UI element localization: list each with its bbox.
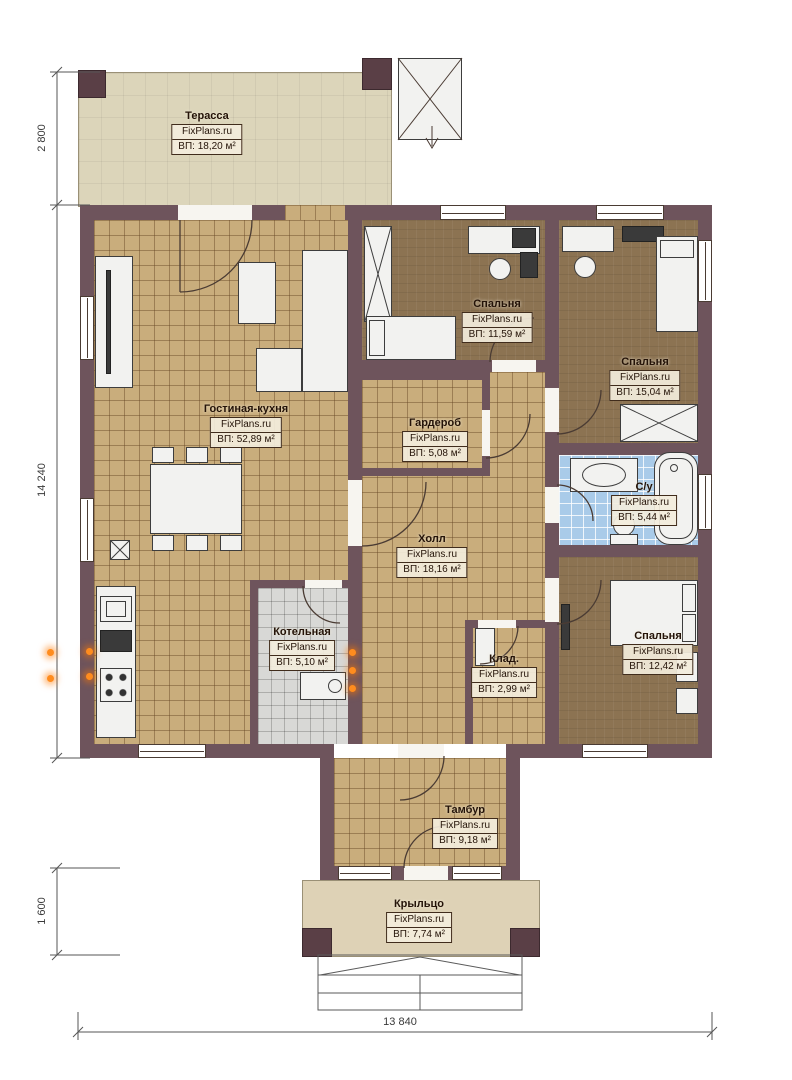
brand-watermark: FixPlans.ru	[463, 313, 532, 328]
dining-chair	[220, 447, 242, 463]
window-bottom-bedroom3	[582, 744, 648, 758]
wardrobe-door-opening	[482, 410, 490, 456]
boiler-door-opening	[305, 580, 342, 588]
dimension-left-bottom: 1 600	[36, 897, 48, 925]
wall-vestibule-left	[320, 744, 334, 880]
entry-door-opening	[404, 866, 448, 880]
desk-chair	[489, 258, 511, 280]
brand-watermark: FixPlans.ru	[623, 645, 692, 660]
room-name: Клад.	[471, 653, 537, 666]
room-area: ВП: 7,74 м²	[387, 928, 451, 942]
porch-steps	[318, 955, 522, 1010]
tv-screen	[561, 604, 570, 650]
room-label-bedroom-bottom: Спальня FixPlans.ru ВП: 12,42 м²	[622, 630, 693, 675]
room-name: Котельная	[269, 626, 335, 639]
radiator-marker	[349, 685, 356, 692]
window-left-living1	[80, 296, 94, 360]
radiator-marker	[86, 648, 93, 655]
wall-bathroom-bottom	[559, 545, 698, 557]
pillow	[682, 584, 696, 612]
wall-east-b	[545, 432, 559, 487]
room-name: Тамбур	[432, 804, 498, 817]
room-area: ВП: 18,20 м²	[172, 140, 241, 154]
sofa	[302, 250, 348, 392]
wardrobe-cabinet	[364, 226, 392, 322]
toilet-tank	[610, 534, 638, 545]
dining-table	[150, 464, 242, 534]
room-label-bathroom: С/у FixPlans.ru ВП: 5,44 м²	[611, 481, 677, 526]
coffee-table	[238, 262, 276, 324]
brand-watermark: FixPlans.ru	[172, 125, 241, 140]
radiator-marker	[86, 673, 93, 680]
brand-watermark: FixPlans.ru	[403, 432, 467, 447]
brand-watermark: FixPlans.ru	[472, 668, 536, 683]
room-name: Гардероб	[402, 417, 468, 430]
floor-plan-canvas: Терасса FixPlans.ru ВП: 18,20 м² Спальня…	[0, 0, 792, 1080]
brand-watermark: FixPlans.ru	[612, 496, 676, 511]
brand-watermark: FixPlans.ru	[270, 641, 334, 656]
monitor	[512, 228, 536, 248]
desk	[562, 226, 614, 252]
kitchen-sink-basin	[106, 601, 126, 617]
room-label-boiler: Котельная FixPlans.ru ВП: 5,10 м²	[269, 626, 335, 671]
radiator-marker	[47, 675, 54, 682]
room-label-porch: Крыльцо FixPlans.ru ВП: 7,74 м²	[386, 898, 452, 943]
dining-chair	[220, 535, 242, 551]
radiator-marker	[349, 667, 356, 674]
room-name: Спальня	[609, 356, 680, 369]
brand-watermark: FixPlans.ru	[610, 371, 679, 386]
brand-watermark: FixPlans.ru	[433, 819, 497, 834]
room-area: ВП: 12,42 м²	[623, 660, 692, 674]
tv-cabinet	[95, 256, 133, 388]
room-area: ВП: 11,59 м²	[463, 328, 532, 342]
dimension-left-side: 14 240	[36, 463, 48, 497]
pillow	[369, 320, 385, 356]
window-vestibule-right	[452, 866, 502, 880]
wall-wardrobe-bottom	[362, 468, 490, 476]
wall-vestibule-right	[506, 744, 520, 880]
radiator-marker	[47, 649, 54, 656]
dining-chair	[152, 535, 174, 551]
boiler-dial	[328, 679, 342, 693]
wall-divider-upper	[348, 220, 362, 480]
brand-watermark: FixPlans.ru	[397, 548, 466, 563]
room-area: ВП: 15,04 м²	[610, 386, 679, 400]
wall-east-a	[545, 220, 559, 388]
sofa-chaise	[256, 348, 302, 392]
room-label-storage: Клад. FixPlans.ru ВП: 2,99 м²	[471, 653, 537, 698]
terrace-passage-threshold	[285, 205, 345, 220]
room-area: ВП: 5,08 м²	[403, 447, 467, 461]
dimension-bottom: 13 840	[383, 1016, 417, 1028]
wardrobe-cabinet	[620, 404, 698, 442]
wall-east-c	[545, 523, 559, 578]
bedroom2-door-opening	[545, 388, 559, 432]
wall-wardrobe-top	[362, 372, 490, 380]
room-area: ВП: 9,18 м²	[433, 834, 497, 848]
window-top-bedroom1	[440, 205, 506, 220]
room-name: С/у	[611, 481, 677, 494]
stove	[100, 668, 132, 702]
terrace-post-left	[78, 70, 106, 98]
room-label-vestibule: Тамбур FixPlans.ru ВП: 9,18 м²	[432, 804, 498, 849]
wall-divider-lower	[348, 546, 362, 744]
room-label-hall: Холл FixPlans.ru ВП: 18,16 м²	[396, 533, 467, 578]
room-area: ВП: 5,10 м²	[270, 656, 334, 670]
dresser	[676, 688, 698, 714]
window-left-living2	[80, 498, 94, 562]
room-name: Спальня	[622, 630, 693, 643]
window-vestibule-left	[338, 866, 392, 880]
living-hall-door-opening	[348, 480, 362, 546]
window-right-bathroom	[698, 474, 712, 530]
canopy-shaft	[398, 58, 462, 140]
brand-watermark: FixPlans.ru	[211, 418, 280, 433]
kitchen-cabinet	[110, 540, 130, 560]
brand-watermark: FixPlans.ru	[387, 913, 451, 928]
porch-post-right	[510, 928, 540, 957]
room-name: Терасса	[171, 110, 242, 123]
dining-chair	[186, 535, 208, 551]
room-area: ВП: 18,16 м²	[397, 563, 466, 577]
terrace-door-opening	[178, 205, 252, 220]
room-area: ВП: 5,44 м²	[612, 511, 676, 525]
porch-post-left	[302, 928, 332, 957]
tv-screen	[106, 270, 111, 374]
shelf	[520, 252, 538, 278]
wall-east-d	[545, 622, 559, 744]
window-bottom-living	[138, 744, 206, 758]
room-label-bedroom-top: Спальня FixPlans.ru ВП: 11,59 м²	[462, 298, 533, 343]
room-name: Гостиная-кухня	[204, 403, 288, 416]
vestibule-door-opening	[398, 744, 444, 758]
wall-bottom-left	[80, 744, 334, 758]
bedroom3-door-opening	[545, 578, 559, 622]
room-area: ВП: 52,89 м²	[211, 433, 280, 447]
desk-chair	[574, 256, 596, 278]
room-name: Крыльцо	[386, 898, 452, 911]
room-label-bedroom-right: Спальня FixPlans.ru ВП: 15,04 м²	[609, 356, 680, 401]
wall-boiler-left	[250, 580, 258, 744]
bathtub-drain	[670, 464, 678, 472]
bathroom-door-opening	[545, 487, 559, 523]
room-area: ВП: 2,99 м²	[472, 683, 536, 697]
bedroom1-door-opening	[492, 360, 536, 372]
dining-chair	[152, 447, 174, 463]
dimension-left-top: 2 800	[36, 124, 48, 152]
dining-chair	[186, 447, 208, 463]
room-label-wardrobe: Гардероб FixPlans.ru ВП: 5,08 м²	[402, 417, 468, 462]
room-name: Спальня	[462, 298, 533, 311]
room-label-terrace: Терасса FixPlans.ru ВП: 18,20 м²	[171, 110, 242, 155]
room-label-living-kitchen: Гостиная-кухня FixPlans.ru ВП: 52,89 м²	[204, 403, 288, 448]
storage-door-opening	[478, 620, 516, 628]
terrace-post-right	[362, 58, 392, 90]
window-right-bedroom2	[698, 240, 712, 302]
room-name: Холл	[396, 533, 467, 546]
oven	[100, 630, 132, 652]
window-top-bedroom2	[596, 205, 664, 220]
pillow	[660, 240, 694, 258]
radiator-marker	[349, 649, 356, 656]
